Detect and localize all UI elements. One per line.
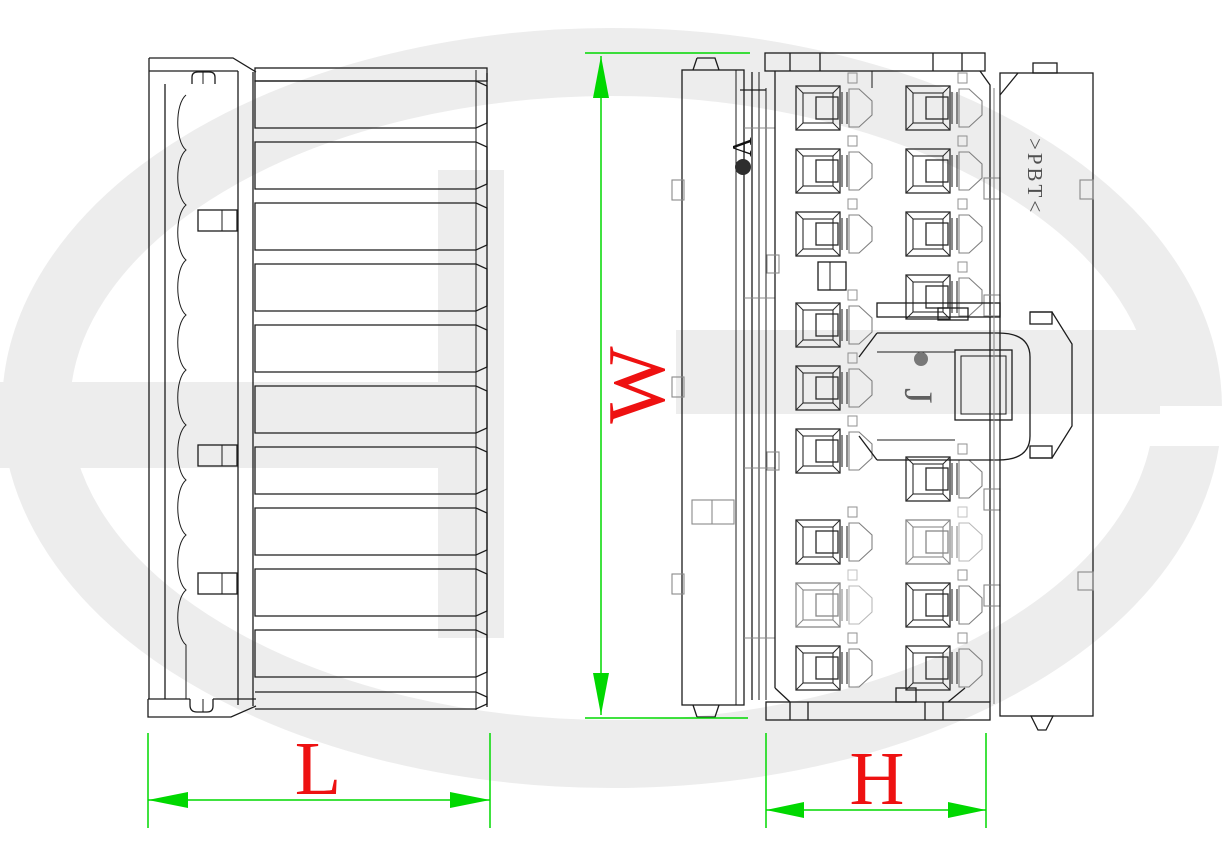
terminal-cavity [906,507,982,564]
length-label: L [295,727,341,811]
cap-bottom-tab [190,699,213,712]
datum-a-label: A [727,137,757,157]
technical-drawing-page: J >PBT< A L W [0,0,1229,844]
terminal-cavity [796,570,872,627]
technical-drawing-canvas: J >PBT< A L W [0,0,1229,844]
material-marking-pbt: >PBT< [1023,138,1047,215]
arrowhead-right [450,792,490,808]
latch-j-dot [914,352,928,366]
terminal-cavity [906,199,982,256]
width-label: W [591,346,682,424]
height-label: H [850,737,905,821]
terminal-cavity [796,136,872,193]
panel-bottom-foot [693,705,719,717]
panel-foot [1031,716,1053,730]
terminal-cavity [796,507,872,564]
watermark-bar-horizontal [0,382,497,468]
terminal-cavity [796,199,872,256]
terminal-cavity [906,262,982,319]
terminal-cavity [796,633,872,690]
datum-a-dot [735,159,751,175]
arrowhead-right [948,802,986,818]
watermark-bar-vertical [438,170,504,638]
arrowhead-left [766,802,804,818]
terminal-cavity [906,570,982,627]
arrowhead-down [593,673,609,715]
terminal-cavity [796,416,872,473]
latch-j-label: J [896,388,941,404]
arrowhead-left [148,792,188,808]
terminal-cavity [906,444,982,501]
